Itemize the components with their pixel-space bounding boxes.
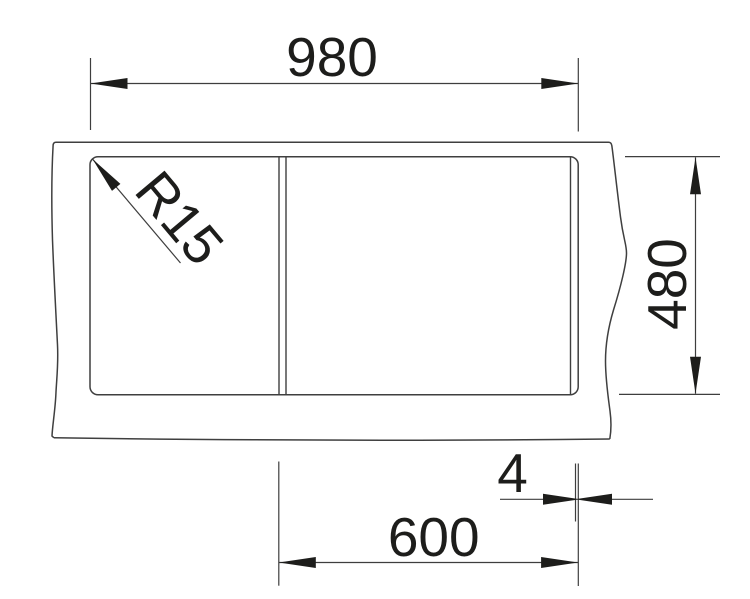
svg-text:600: 600 <box>388 506 480 568</box>
svg-text:R15: R15 <box>123 159 235 276</box>
svg-text:480: 480 <box>636 238 698 330</box>
svg-text:980: 980 <box>286 26 378 88</box>
svg-text:4: 4 <box>497 442 528 504</box>
